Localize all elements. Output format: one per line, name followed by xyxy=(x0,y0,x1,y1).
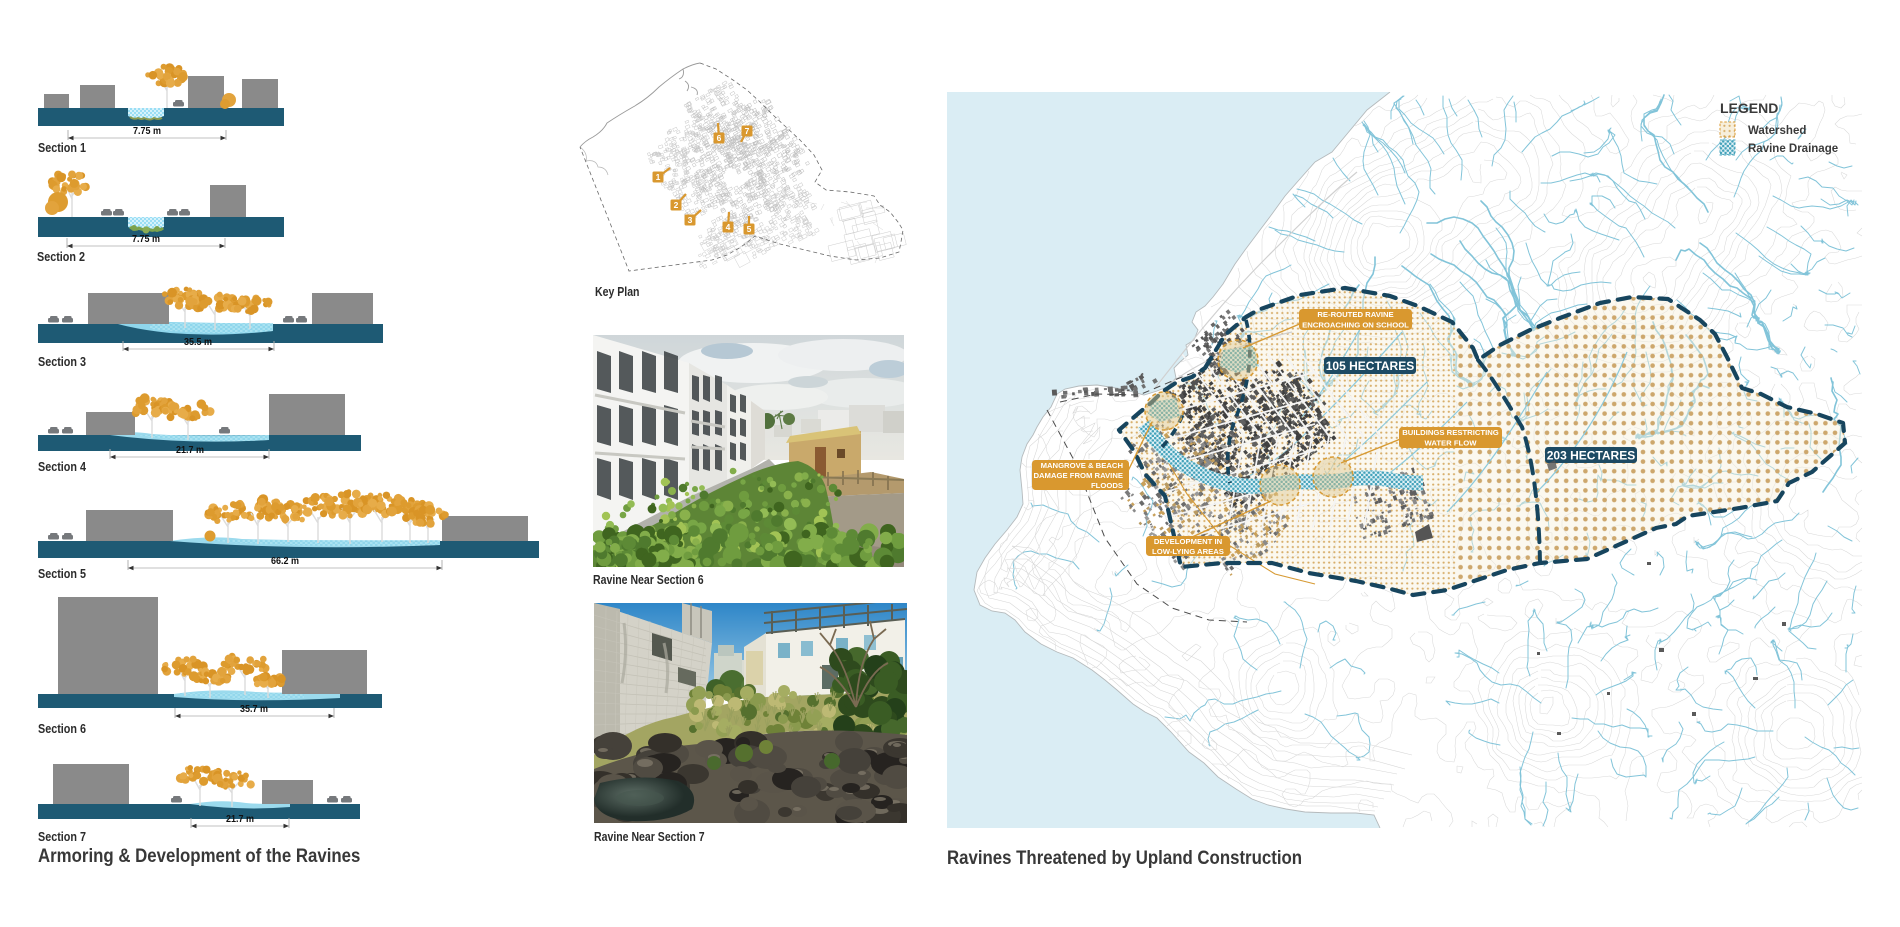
svg-text:21.7 m: 21.7 m xyxy=(176,445,204,456)
svg-text:21.7 m: 21.7 m xyxy=(226,814,254,825)
svg-text:203 HECTARES: 203 HECTARES xyxy=(1547,449,1635,463)
svg-text:35.7 m: 35.7 m xyxy=(240,704,268,715)
svg-text:Section 7: Section 7 xyxy=(38,829,86,844)
svg-text:BUILDINGS RESTRICTING: BUILDINGS RESTRICTING xyxy=(1402,428,1499,437)
svg-text:WATER FLOW: WATER FLOW xyxy=(1425,439,1478,448)
svg-text:105 HECTARES: 105 HECTARES xyxy=(1326,359,1414,373)
svg-text:4: 4 xyxy=(726,222,731,232)
svg-text:ENCROACHING ON SCHOOL: ENCROACHING ON SCHOOL xyxy=(1302,321,1409,330)
svg-text:7.75 m: 7.75 m xyxy=(133,126,161,137)
svg-text:Section 3: Section 3 xyxy=(38,354,86,369)
svg-text:Watershed: Watershed xyxy=(1748,125,1806,137)
svg-text:RE-ROUTED RAVINE: RE-ROUTED RAVINE xyxy=(1317,310,1393,319)
svg-text:Section 1: Section 1 xyxy=(38,140,86,155)
svg-text:Section 5: Section 5 xyxy=(38,566,86,581)
svg-text:1: 1 xyxy=(656,172,661,182)
svg-text:FLOODS: FLOODS xyxy=(1091,481,1123,490)
svg-text:LOW-LYING AREAS: LOW-LYING AREAS xyxy=(1152,547,1224,556)
svg-text:2: 2 xyxy=(674,200,679,210)
svg-text:Section 6: Section 6 xyxy=(38,721,86,736)
svg-text:DEVELOPMENT IN: DEVELOPMENT IN xyxy=(1154,537,1223,546)
svg-text:5: 5 xyxy=(747,224,752,234)
svg-text:35.5 m: 35.5 m xyxy=(184,337,212,348)
svg-text:LEGEND: LEGEND xyxy=(1720,100,1778,116)
svg-text:DAMAGE FROM RAVINE: DAMAGE FROM RAVINE xyxy=(1033,471,1123,480)
svg-text:7.75 m: 7.75 m xyxy=(132,234,160,245)
svg-text:66.2 m: 66.2 m xyxy=(271,556,299,567)
svg-text:3: 3 xyxy=(688,215,693,225)
svg-text:6: 6 xyxy=(717,133,722,143)
svg-text:7: 7 xyxy=(745,126,750,136)
svg-text:Section 4: Section 4 xyxy=(38,459,87,474)
svg-text:Section 2: Section 2 xyxy=(37,249,85,264)
svg-text:MANGROVE & BEACH: MANGROVE & BEACH xyxy=(1041,461,1124,470)
svg-text:Ravine Drainage: Ravine Drainage xyxy=(1748,143,1838,155)
